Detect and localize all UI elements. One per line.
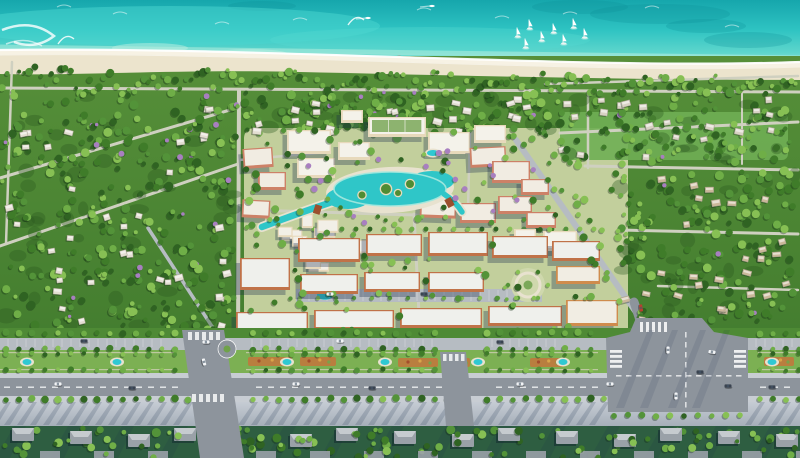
bottom-house <box>658 428 682 443</box>
scene-svg <box>0 0 800 458</box>
villa-roof <box>448 116 457 123</box>
building-block <box>236 258 291 295</box>
villa-roof <box>704 187 714 194</box>
building-block <box>488 236 549 263</box>
villa-roof <box>312 109 321 116</box>
aerial-masterplan-render <box>0 0 800 458</box>
villa-roof <box>214 293 223 301</box>
villa-roof <box>562 101 571 108</box>
car <box>369 386 377 391</box>
building-block <box>470 125 507 148</box>
lagoon-island <box>359 192 366 199</box>
car <box>337 339 345 344</box>
flower-bed <box>398 358 438 367</box>
seagrass-patch <box>704 32 792 48</box>
median-pool <box>381 359 390 365</box>
median-pool <box>283 359 292 365</box>
car <box>769 385 777 390</box>
villa-roof <box>598 109 608 118</box>
villa-roof <box>175 139 185 147</box>
seagrass-patch <box>532 0 628 14</box>
building-block <box>334 142 371 165</box>
lagoon-island <box>381 184 391 194</box>
bottom-house <box>450 434 474 449</box>
villa-roof <box>21 145 30 151</box>
villa-roof <box>638 104 647 112</box>
bottom-house <box>126 434 150 449</box>
villa-roof <box>771 252 781 259</box>
villa-roof <box>570 114 579 122</box>
villa-roof <box>52 288 62 296</box>
car <box>203 340 211 345</box>
villa-roof <box>290 118 299 125</box>
car <box>725 384 733 389</box>
bottom-house <box>392 431 416 446</box>
bottom-house <box>10 428 34 443</box>
car <box>129 386 137 391</box>
car <box>421 292 429 297</box>
bottom-house <box>68 431 92 446</box>
car <box>665 347 670 355</box>
car <box>293 382 301 387</box>
seagrass-patch <box>666 19 746 33</box>
building-block <box>424 232 489 261</box>
median-pool <box>559 359 568 365</box>
bottom-house <box>554 431 578 446</box>
motorboat <box>365 17 371 19</box>
median-pool <box>113 359 122 365</box>
building-block <box>294 238 361 267</box>
car <box>327 292 335 297</box>
building-block <box>362 234 423 261</box>
car <box>517 382 525 387</box>
villa-roof <box>656 176 666 184</box>
building-block <box>364 117 427 142</box>
villa-roof <box>752 108 760 114</box>
villa-roof <box>662 120 671 127</box>
median-pool <box>23 359 32 365</box>
villa-roof <box>726 201 736 208</box>
building-block <box>484 306 563 331</box>
villa-roof <box>710 199 721 208</box>
car <box>55 382 63 387</box>
villa-roof <box>694 281 703 290</box>
building-block <box>552 266 601 289</box>
car <box>673 393 678 401</box>
villa-roof <box>54 267 63 275</box>
car <box>607 382 615 387</box>
median-pool <box>768 359 777 365</box>
lagoon-island <box>395 190 401 196</box>
green-roof <box>372 120 388 132</box>
lagoon-island <box>406 180 414 188</box>
villa-roof <box>425 105 434 113</box>
motorboat <box>429 5 435 7</box>
green-roof <box>405 120 421 132</box>
car <box>81 339 89 344</box>
median-pool <box>474 359 483 365</box>
villa-roof <box>43 144 52 152</box>
car <box>697 370 705 375</box>
villa-roof <box>745 291 755 300</box>
green-roof <box>389 120 405 132</box>
car <box>497 340 505 345</box>
villa-roof <box>204 107 213 114</box>
